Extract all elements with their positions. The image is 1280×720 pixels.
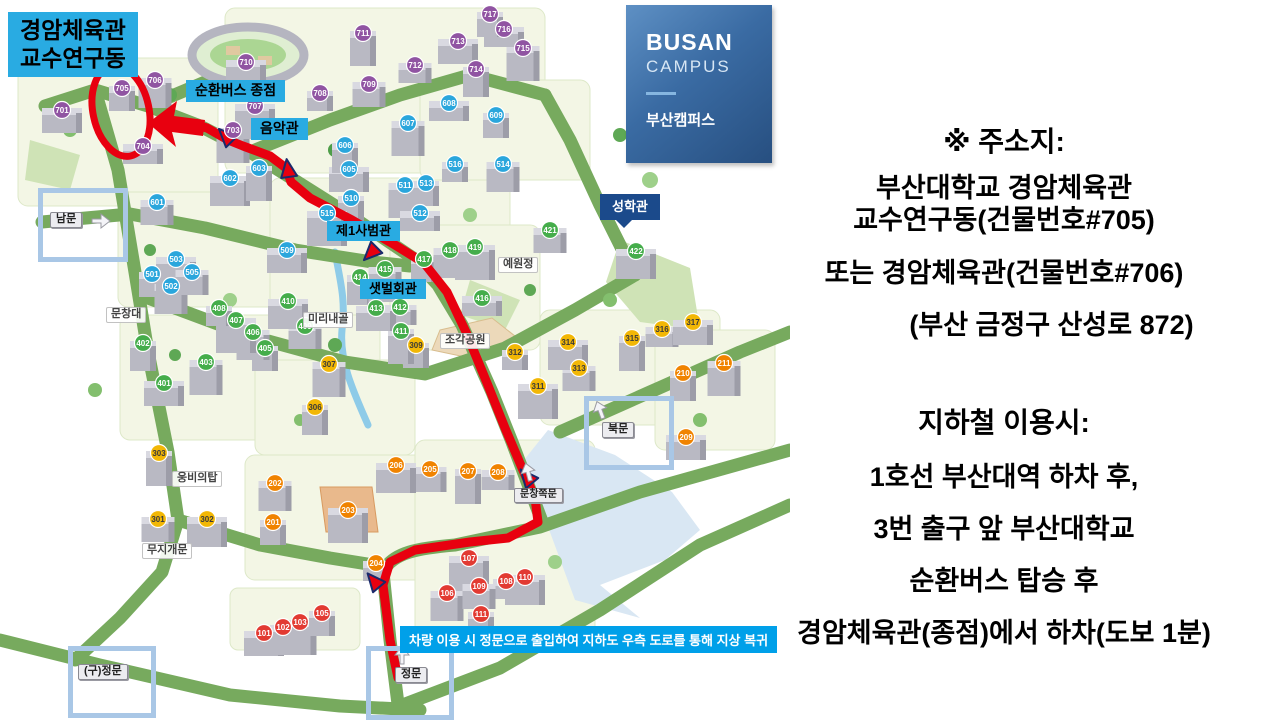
building-badge-315: 315 — [624, 330, 641, 347]
label-rainbow-gate: 무지개문 — [142, 543, 192, 559]
svg-text:516: 516 — [448, 160, 462, 169]
svg-text:710: 710 — [239, 58, 253, 67]
svg-text:502: 502 — [164, 282, 178, 291]
svg-text:701: 701 — [55, 106, 69, 115]
building-badge-607: 607 — [400, 115, 417, 132]
destination-callout: 경암체육관 교수연구동 — [8, 12, 138, 77]
building-badge-402: 402 — [135, 335, 152, 352]
building-badge-302: 302 — [199, 511, 216, 528]
svg-text:606: 606 — [338, 141, 352, 150]
svg-text:202: 202 — [268, 479, 282, 488]
svg-text:712: 712 — [408, 61, 422, 70]
svg-text:703: 703 — [226, 126, 240, 135]
building-badge-706: 706 — [147, 72, 164, 89]
building-badge-703: 703 — [225, 122, 242, 139]
svg-text:412: 412 — [393, 303, 407, 312]
building-badge-511: 511 — [397, 177, 414, 194]
building-badge-606: 606 — [337, 137, 354, 154]
svg-text:203: 203 — [341, 506, 355, 515]
building-badge-713: 713 — [450, 33, 467, 50]
building-badge-714: 714 — [468, 61, 485, 78]
svg-text:408: 408 — [212, 304, 226, 313]
building-badge-108: 108 — [498, 573, 515, 590]
building-badge-307: 307 — [321, 356, 338, 373]
building-badge-107: 107 — [461, 550, 478, 567]
building-badge-105: 105 — [314, 605, 331, 622]
driving-notice: 차량 이용 시 정문으로 출입하여 지하도 우측 도로를 통해 지상 복귀 — [400, 626, 777, 653]
svg-text:401: 401 — [157, 379, 171, 388]
logo-title-en: BUSAN — [646, 29, 772, 56]
svg-text:715: 715 — [516, 44, 530, 53]
svg-text:511: 511 — [399, 181, 412, 190]
building-badge-503: 503 — [168, 251, 185, 268]
svg-text:108: 108 — [499, 577, 513, 586]
building-badge-411: 411 — [393, 323, 410, 340]
svg-text:411: 411 — [395, 327, 408, 336]
building-badge-605: 605 — [341, 161, 358, 178]
label-shuttle-bus-terminus: 순환버스 종점 — [186, 80, 285, 102]
building-badge-601: 601 — [149, 194, 166, 211]
building-badge-417: 417 — [416, 251, 433, 268]
svg-text:605: 605 — [342, 165, 356, 174]
svg-text:111: 111 — [475, 610, 488, 619]
building-badge-103: 103 — [292, 614, 309, 631]
building-badge-602: 602 — [222, 170, 239, 187]
label-south-gate: 남문 — [50, 212, 82, 228]
svg-text:603: 603 — [252, 164, 266, 173]
building-badge-201: 201 — [265, 514, 282, 531]
label-munchangdae: 문창대 — [106, 307, 146, 323]
building-badge-111: 111 — [473, 606, 490, 623]
building-badge-204: 204 — [368, 555, 385, 572]
label-main-gate: 정문 — [395, 667, 427, 683]
svg-text:105: 105 — [315, 609, 329, 618]
building-badge-512: 512 — [412, 205, 429, 222]
building-badge-704: 704 — [135, 138, 152, 155]
building-badge-313: 313 — [571, 360, 588, 377]
svg-text:307: 307 — [322, 360, 336, 369]
svg-text:608: 608 — [442, 99, 456, 108]
building-badge-413: 413 — [368, 300, 385, 317]
building-badge-416: 416 — [474, 290, 491, 307]
building-badge-101: 101 — [256, 625, 273, 642]
label-mirinae-valley: 미리내골 — [303, 312, 353, 328]
address-title: ※ 주소지: — [780, 120, 1228, 160]
address-line: 또는 경암체육관(건물번호#706) — [780, 251, 1228, 290]
label-north-gate: 북문 — [602, 422, 634, 438]
svg-text:313: 313 — [572, 364, 586, 373]
svg-text:407: 407 — [229, 316, 243, 325]
logo-title-ko: 부산캠퍼스 — [646, 109, 772, 130]
svg-text:101: 101 — [257, 629, 271, 638]
svg-text:708: 708 — [313, 89, 327, 98]
building-badge-102: 102 — [275, 619, 292, 636]
building-badge-406: 406 — [245, 324, 262, 341]
svg-text:209: 209 — [679, 433, 693, 442]
subway-line: 경암체육관(종점)에서 하차(도보 1분) — [780, 611, 1228, 650]
svg-text:609: 609 — [489, 111, 503, 120]
building-badge-415: 415 — [377, 261, 394, 278]
building-badge-106: 106 — [439, 585, 456, 602]
building-badge-210: 210 — [675, 365, 692, 382]
svg-text:601: 601 — [150, 198, 164, 207]
svg-text:706: 706 — [148, 76, 162, 85]
svg-text:107: 107 — [462, 554, 476, 563]
building-badge-110: 110 — [517, 569, 534, 586]
svg-text:422: 422 — [629, 247, 643, 256]
svg-text:505: 505 — [185, 268, 199, 277]
svg-text:106: 106 — [440, 589, 454, 598]
svg-text:419: 419 — [468, 243, 482, 252]
label-yewonjeong: 예원정 — [498, 257, 538, 273]
building-badge-709: 709 — [361, 76, 378, 93]
label-sculpture-park: 조각공원 — [440, 333, 490, 349]
building-badge-408: 408 — [211, 300, 228, 317]
building-badge-708: 708 — [312, 85, 329, 102]
svg-text:512: 512 — [413, 209, 427, 218]
svg-text:211: 211 — [718, 359, 731, 368]
svg-text:415: 415 — [378, 265, 392, 274]
building-badge-712: 712 — [407, 57, 424, 74]
svg-text:102: 102 — [276, 623, 290, 632]
address-line: (부산 금정구 산성로 872) — [780, 303, 1228, 342]
svg-text:713: 713 — [451, 37, 465, 46]
svg-text:315: 315 — [625, 334, 639, 343]
logo-subtitle-en: CAMPUS — [646, 57, 772, 77]
svg-text:418: 418 — [443, 246, 457, 255]
svg-text:510: 510 — [344, 194, 358, 203]
building-badge-711: 711 — [355, 25, 372, 42]
svg-text:602: 602 — [223, 174, 237, 183]
svg-text:717: 717 — [483, 10, 497, 19]
svg-text:204: 204 — [369, 559, 383, 568]
slide: 1011021031051061071081091101112012022032… — [0, 0, 1280, 720]
svg-text:709: 709 — [362, 80, 376, 89]
label-saetbeol-hall: 샛벌회관 — [360, 279, 426, 299]
subway-line: 순환버스 탑승 후 — [780, 559, 1228, 598]
svg-text:509: 509 — [280, 246, 294, 255]
main-gate-frame — [366, 646, 454, 720]
building-badge-316: 316 — [654, 321, 671, 338]
label-munchang-side-gate: 문창쪽문 — [514, 488, 563, 503]
svg-text:312: 312 — [508, 348, 522, 357]
svg-text:705: 705 — [115, 84, 129, 93]
svg-text:317: 317 — [686, 318, 700, 327]
svg-text:514: 514 — [496, 160, 510, 169]
address-line: 교수연구동(건물번호#705) — [780, 206, 1228, 236]
building-badge-515: 515 — [319, 205, 336, 222]
svg-text:405: 405 — [258, 344, 272, 353]
svg-text:403: 403 — [199, 358, 213, 367]
building-badge-422: 422 — [628, 243, 645, 260]
svg-text:402: 402 — [136, 339, 150, 348]
building-badge-715: 715 — [515, 40, 532, 57]
svg-text:316: 316 — [655, 325, 669, 334]
building-badge-205: 205 — [422, 461, 439, 478]
label-music-hall: 음악관 — [251, 118, 308, 140]
svg-text:716: 716 — [497, 25, 511, 34]
building-badge-401: 401 — [156, 375, 173, 392]
building-badge-403: 403 — [198, 354, 215, 371]
svg-text:205: 205 — [423, 465, 437, 474]
building-badge-202: 202 — [267, 475, 284, 492]
building-badge-410: 410 — [280, 293, 297, 310]
address-line: 부산대학교 경암체육관 — [780, 174, 1228, 204]
destination-callout-line2: 교수연구동 — [20, 45, 126, 73]
old-main-gate-frame — [68, 646, 156, 718]
building-badge-509: 509 — [279, 242, 296, 259]
building-badge-312: 312 — [507, 344, 524, 361]
building-badge-206: 206 — [388, 457, 405, 474]
building-badge-603: 603 — [251, 160, 268, 177]
building-badge-314: 314 — [560, 334, 577, 351]
svg-text:416: 416 — [475, 294, 489, 303]
label-old-main-gate: (구)정문 — [78, 664, 128, 680]
svg-text:607: 607 — [401, 119, 415, 128]
building-badge-608: 608 — [441, 95, 458, 112]
svg-text:711: 711 — [357, 29, 370, 38]
building-badge-609: 609 — [488, 107, 505, 124]
subway-line: 3번 출구 앞 부산대학교 — [780, 507, 1228, 546]
building-badge-211: 211 — [716, 355, 733, 372]
svg-text:109: 109 — [472, 582, 486, 591]
subway-line: 1호선 부산대역 하차 후, — [780, 455, 1228, 494]
svg-text:302: 302 — [200, 515, 214, 524]
svg-text:501: 501 — [145, 270, 159, 279]
building-badge-317: 317 — [685, 314, 702, 331]
destination-callout-line1: 경암체육관 — [20, 17, 126, 45]
building-badge-710: 710 — [238, 54, 255, 71]
building-badge-207: 207 — [460, 463, 477, 480]
building-badge-208: 208 — [490, 464, 507, 481]
building-badge-109: 109 — [471, 578, 488, 595]
svg-text:413: 413 — [369, 304, 383, 313]
svg-text:110: 110 — [519, 573, 532, 582]
svg-text:704: 704 — [136, 142, 150, 151]
svg-text:311: 311 — [532, 382, 545, 391]
svg-text:306: 306 — [308, 403, 322, 412]
building-badge-412: 412 — [392, 299, 409, 316]
building-badge-501: 501 — [144, 266, 161, 283]
label-seonghak-hall: 성학관 — [600, 194, 660, 220]
svg-text:513: 513 — [419, 179, 433, 188]
label-first-education-hall: 제1사범관 — [327, 221, 400, 241]
directions-panel: ※ 주소지: 부산대학교 경암체육관 교수연구동(건물번호#705) 또는 경암… — [780, 120, 1228, 663]
svg-text:103: 103 — [293, 618, 307, 627]
svg-text:210: 210 — [676, 369, 690, 378]
building-badge-717: 717 — [482, 6, 499, 23]
svg-text:206: 206 — [389, 461, 403, 470]
building-badge-513: 513 — [418, 175, 435, 192]
building-badge-705: 705 — [114, 80, 131, 97]
building-badge-301: 301 — [150, 511, 167, 528]
building-badge-421: 421 — [542, 222, 559, 239]
building-badge-311: 311 — [530, 378, 547, 395]
svg-text:410: 410 — [281, 297, 295, 306]
svg-text:515: 515 — [320, 209, 334, 218]
building-badge-510: 510 — [343, 190, 360, 207]
busan-campus-logo: BUSAN CAMPUS 부산캠퍼스 — [626, 5, 772, 163]
building-badge-405: 405 — [257, 340, 274, 357]
svg-text:421: 421 — [543, 226, 557, 235]
building-badge-309: 309 — [408, 337, 425, 354]
building-badge-306: 306 — [307, 399, 324, 416]
svg-text:207: 207 — [461, 467, 475, 476]
svg-text:406: 406 — [246, 328, 260, 337]
building-badge-418: 418 — [442, 242, 459, 259]
building-badge-514: 514 — [495, 156, 512, 173]
svg-text:707: 707 — [248, 102, 262, 111]
svg-text:303: 303 — [152, 449, 166, 458]
building-badge-303: 303 — [151, 445, 168, 462]
building-badge-203: 203 — [340, 502, 357, 519]
building-badge-516: 516 — [447, 156, 464, 173]
svg-text:503: 503 — [169, 255, 183, 264]
logo-divider — [646, 92, 676, 95]
svg-text:314: 314 — [561, 338, 575, 347]
spacer — [780, 355, 1228, 401]
building-badge-505: 505 — [184, 264, 201, 281]
building-badge-502: 502 — [163, 278, 180, 295]
building-badge-419: 419 — [467, 239, 484, 256]
svg-text:201: 201 — [266, 518, 280, 527]
subway-title: 지하철 이용시: — [780, 401, 1228, 441]
building-badge-716: 716 — [496, 21, 513, 38]
svg-text:309: 309 — [409, 341, 423, 350]
label-ungbi-tower: 웅비의탑 — [172, 471, 222, 487]
svg-text:714: 714 — [469, 65, 483, 74]
building-badge-209: 209 — [678, 429, 695, 446]
building-badge-701: 701 — [54, 102, 71, 119]
svg-text:417: 417 — [417, 255, 431, 264]
svg-text:208: 208 — [491, 468, 505, 477]
svg-text:301: 301 — [151, 515, 165, 524]
building-badge-407: 407 — [228, 312, 245, 329]
